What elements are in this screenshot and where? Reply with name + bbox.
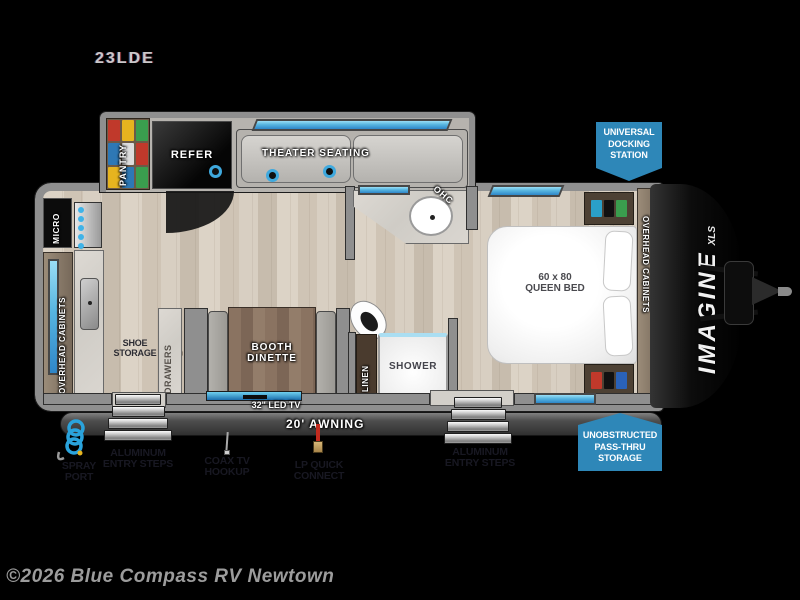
lp-connect-icon bbox=[316, 424, 320, 441]
docking-line3: STATION bbox=[596, 150, 662, 162]
passthru-line2: PASS-THRU bbox=[578, 442, 662, 454]
tv-label: 32" LED TV bbox=[238, 400, 314, 410]
dinette-table: BOOTH DINETTE bbox=[228, 307, 316, 399]
theater-seat-left bbox=[241, 135, 351, 183]
docking-line2: DOCKING bbox=[596, 139, 662, 151]
coax-line2: HOOKUP bbox=[186, 467, 268, 478]
pantry-label: PANTRY bbox=[118, 124, 128, 186]
docking-line1: UNIVERSAL bbox=[596, 127, 662, 139]
overhead-cabinets-left-label: OVERHEAD CABINETS bbox=[58, 258, 67, 394]
drawers-label: DRAWERS bbox=[163, 314, 173, 394]
shoe-storage-line2: STORAGE bbox=[104, 348, 166, 358]
steps-left-line2: ENTRY STEPS bbox=[92, 459, 184, 470]
linen-label: LINEN bbox=[361, 340, 370, 392]
dinette-bench-right bbox=[316, 311, 336, 399]
bed-type: QUEEN BED bbox=[500, 283, 610, 294]
cupholder-icon bbox=[323, 165, 336, 178]
passthru-line1: UNOBSTRUCTED bbox=[578, 430, 662, 442]
hitch-coupler bbox=[778, 287, 792, 296]
docking-station-callout: UNIVERSAL DOCKING STATION bbox=[596, 122, 662, 181]
booth-label-line2: DINETTE bbox=[247, 353, 297, 364]
bottom-wall-segment bbox=[43, 393, 112, 405]
refrigerator: REFER bbox=[152, 121, 232, 189]
theater-window bbox=[252, 119, 453, 131]
copyright-text: ©2026 Blue Compass RV Newtown bbox=[6, 566, 334, 588]
booth-label-line1: BOOTH bbox=[251, 342, 292, 353]
steps-right-line2: ENTRY STEPS bbox=[434, 458, 526, 469]
passthru-callout: UNOBSTRUCTED PASS-THRU STORAGE bbox=[578, 413, 662, 471]
nightstand-top bbox=[584, 192, 634, 225]
entry-steps-right bbox=[444, 397, 512, 444]
docking-callout-box: UNIVERSAL DOCKING STATION bbox=[596, 122, 662, 168]
nightstand-items bbox=[590, 199, 628, 218]
floorplan-image: 23LDE PANTRY REFER THEATER SEATING MICRO bbox=[0, 0, 800, 600]
dinette-wall-left bbox=[184, 308, 208, 400]
spray-label-line2: PORT bbox=[44, 472, 114, 483]
passthru-callout-box: UNOBSTRUCTED PASS-THRU STORAGE bbox=[578, 425, 662, 471]
shoe-storage-label: SHOE STORAGE bbox=[104, 338, 166, 358]
bath-window bbox=[358, 185, 410, 195]
propane-cover bbox=[724, 261, 754, 325]
bed-label: 60 x 80 QUEEN BED bbox=[500, 272, 610, 294]
awning-label: 20' AWNING bbox=[286, 417, 364, 431]
steps-right-label: ALUMINUM ENTRY STEPS bbox=[434, 447, 526, 469]
theater-seat-right bbox=[353, 135, 463, 183]
refer-label: REFER bbox=[171, 149, 213, 161]
shower: SHOWER bbox=[378, 333, 448, 398]
stove bbox=[74, 202, 102, 248]
shower-label: SHOWER bbox=[389, 361, 437, 372]
shower-wall-right bbox=[448, 318, 458, 399]
bedroom-window-top bbox=[488, 185, 565, 197]
spray-port-icon bbox=[52, 416, 96, 464]
lp-label: LP QUICK CONNECT bbox=[278, 460, 360, 482]
theater-seating-label: THEATER SEATING bbox=[262, 148, 370, 159]
dinette-bench-left bbox=[208, 311, 228, 399]
passthru-line3: STORAGE bbox=[578, 453, 662, 465]
nightstand-items bbox=[590, 371, 628, 390]
pantry-items bbox=[107, 119, 149, 142]
lp-line2: CONNECT bbox=[278, 471, 360, 482]
lp-connect-icon bbox=[313, 441, 323, 453]
overhead-cabinets-right-label: OVERHEAD CABINETS bbox=[641, 216, 650, 376]
pantry-items bbox=[107, 142, 149, 165]
burner-knobs bbox=[78, 207, 84, 249]
coax-label: COAX TV HOOKUP bbox=[186, 456, 268, 478]
pillow bbox=[602, 295, 633, 356]
passthru-callout-pointer bbox=[578, 413, 662, 425]
kitchen-sink bbox=[80, 278, 99, 330]
bath-wall-right bbox=[466, 186, 478, 230]
bedroom-window-bottom bbox=[534, 393, 596, 405]
entry-steps-left bbox=[104, 394, 172, 441]
brand-logo: IMAGINE XLS bbox=[672, 200, 722, 400]
shower-wall-left bbox=[348, 332, 356, 399]
shoe-storage-line1: SHOE bbox=[104, 338, 166, 348]
steps-left-label: ALUMINUM ENTRY STEPS bbox=[92, 448, 184, 470]
cupholder-icon bbox=[266, 169, 279, 182]
bed-size: 60 x 80 bbox=[500, 272, 610, 283]
cupholder-icon bbox=[209, 165, 222, 178]
micro-label: MICRO bbox=[51, 202, 61, 244]
model-title: 23LDE bbox=[95, 50, 155, 68]
brand-sub: XLS bbox=[707, 226, 718, 245]
docking-callout-pointer bbox=[596, 168, 662, 181]
pantry-items bbox=[107, 166, 149, 189]
pantry-cabinet bbox=[106, 118, 150, 190]
